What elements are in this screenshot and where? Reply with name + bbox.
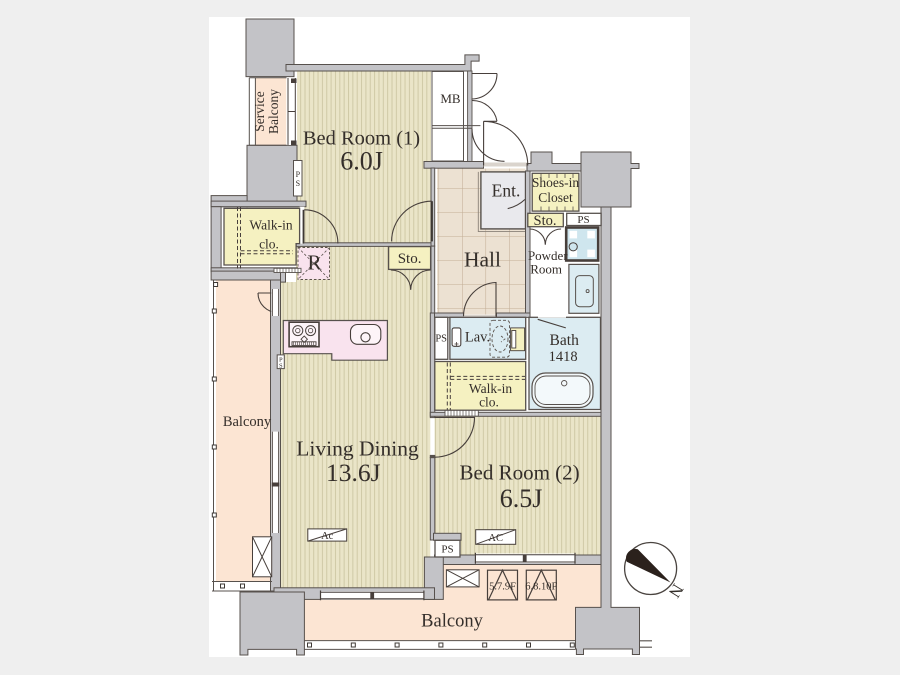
svg-text:Service: Service [252, 91, 267, 131]
svg-text:Balcony: Balcony [421, 612, 483, 632]
svg-text:S: S [279, 363, 283, 370]
svg-text:P: P [296, 170, 301, 179]
svg-text:R: R [307, 251, 321, 275]
svg-text:5.7.9F: 5.7.9F [489, 581, 516, 592]
svg-text:6.8.10F: 6.8.10F [525, 581, 557, 592]
svg-text:6.0J: 6.0J [340, 147, 383, 176]
svg-text:AC: AC [488, 533, 503, 544]
svg-text:13.6J: 13.6J [326, 458, 381, 487]
svg-text:Ac: Ac [321, 531, 334, 542]
svg-text:clo.: clo. [259, 237, 279, 252]
svg-text:6.5J: 6.5J [500, 484, 543, 513]
svg-text:Bed Room (2): Bed Room (2) [460, 461, 580, 485]
svg-text:Walk-in: Walk-in [249, 218, 292, 233]
svg-text:Bath: Bath [550, 332, 580, 349]
svg-text:Ent.: Ent. [492, 181, 521, 201]
svg-text:PS: PS [441, 544, 453, 556]
svg-text:Closet: Closet [538, 190, 573, 205]
svg-text:Balcony: Balcony [266, 89, 281, 134]
svg-text:Sto.: Sto. [398, 251, 422, 267]
svg-text:S: S [296, 179, 300, 188]
svg-text:1418: 1418 [549, 349, 578, 365]
svg-text:MB: MB [440, 91, 461, 106]
svg-text:PS: PS [435, 334, 447, 345]
svg-text:clo.: clo. [479, 395, 499, 410]
svg-text:Hall: Hall [464, 248, 501, 272]
svg-text:Living Dining: Living Dining [296, 437, 419, 461]
svg-text:PS: PS [577, 214, 589, 226]
svg-text:Sto.: Sto. [534, 213, 557, 229]
svg-text:Shoes-in: Shoes-in [532, 175, 580, 190]
svg-text:Lav.: Lav. [465, 330, 490, 346]
svg-text:Balcony: Balcony [223, 414, 272, 430]
svg-text:Room: Room [530, 262, 562, 277]
